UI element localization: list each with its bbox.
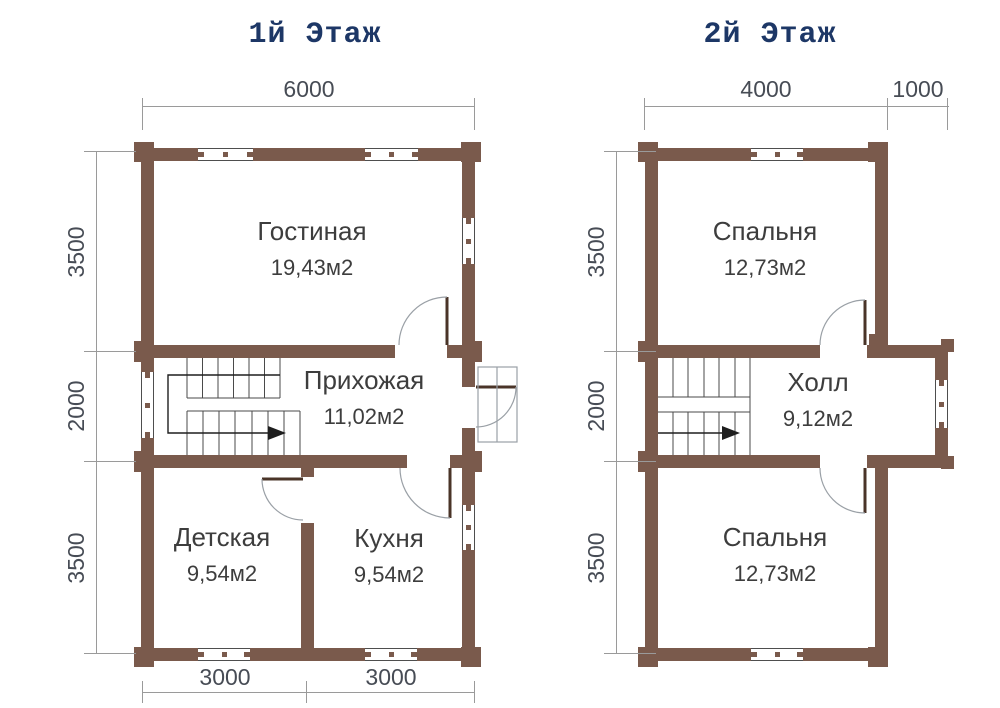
dimension-label: 2000 <box>63 351 89 461</box>
dimension-tick <box>142 98 143 130</box>
dimension-label: 3500 <box>63 503 89 613</box>
dimension-tick <box>142 681 143 703</box>
dimension-tick <box>604 461 656 462</box>
room-area: 9,12м2 <box>708 406 928 432</box>
door-entry <box>476 387 516 427</box>
dimension-tick <box>474 681 475 703</box>
room-name: Холл <box>708 366 928 398</box>
room-name: Спальня <box>665 521 885 553</box>
room-label-kitchen: Кухня 9,54м2 <box>279 522 499 588</box>
room-area: 12,73м2 <box>655 255 875 281</box>
dimension-line <box>644 106 949 107</box>
floor-plan-page: { "titles": { "floor1": "1й Этаж", "floo… <box>0 0 1000 708</box>
dimension-label: 3500 <box>583 197 609 307</box>
room-label-hall: Холл 9,12м2 <box>708 366 928 432</box>
dimension-label: 6000 <box>259 76 359 103</box>
room-area: 19,43м2 <box>202 255 422 281</box>
room-label-bedroom-bottom: Спальня 12,73м2 <box>665 521 885 587</box>
dimension-tick <box>84 351 136 352</box>
dimension-label: 3500 <box>583 503 609 613</box>
room-name: Спальня <box>655 215 875 247</box>
dimension-tick <box>604 351 656 352</box>
room-area: 11,02м2 <box>254 404 474 430</box>
door-bedroom-bottom <box>820 468 865 513</box>
room-label-living: Гостиная 19,43м2 <box>202 215 422 281</box>
room-name: Кухня <box>279 522 499 554</box>
room-label-bedroom-top: Спальня 12,73м2 <box>655 215 875 281</box>
door-kids-room <box>262 479 303 520</box>
door-kitchen <box>400 468 450 518</box>
dimension-label: 3000 <box>175 664 275 691</box>
dimension-tick <box>306 681 307 703</box>
dimension-tick <box>644 98 645 130</box>
dimension-label: 3000 <box>341 664 441 691</box>
room-name: Гостиная <box>202 215 422 247</box>
room-area: 12,73м2 <box>665 561 885 587</box>
dimension-label: 1000 <box>868 76 968 103</box>
door-bedroom-top <box>820 300 865 345</box>
dimension-line <box>96 152 97 654</box>
room-label-hallway: Прихожая 11,02м2 <box>254 364 474 430</box>
dimension-line <box>143 692 475 693</box>
door-living-room <box>399 297 447 345</box>
dimension-tick <box>604 653 656 654</box>
dimension-tick <box>84 653 136 654</box>
dimension-line <box>143 106 475 107</box>
dimension-line <box>616 152 617 654</box>
dimension-label: 4000 <box>716 76 816 103</box>
dimension-label: 2000 <box>583 351 609 461</box>
dimension-tick <box>604 151 656 152</box>
dimension-tick <box>84 151 136 152</box>
room-area: 9,54м2 <box>279 562 499 588</box>
room-name: Прихожая <box>254 364 474 396</box>
entry-porch <box>478 367 517 442</box>
dimension-label: 3500 <box>63 197 89 307</box>
dimension-tick <box>84 461 136 462</box>
dimension-tick <box>474 98 475 130</box>
